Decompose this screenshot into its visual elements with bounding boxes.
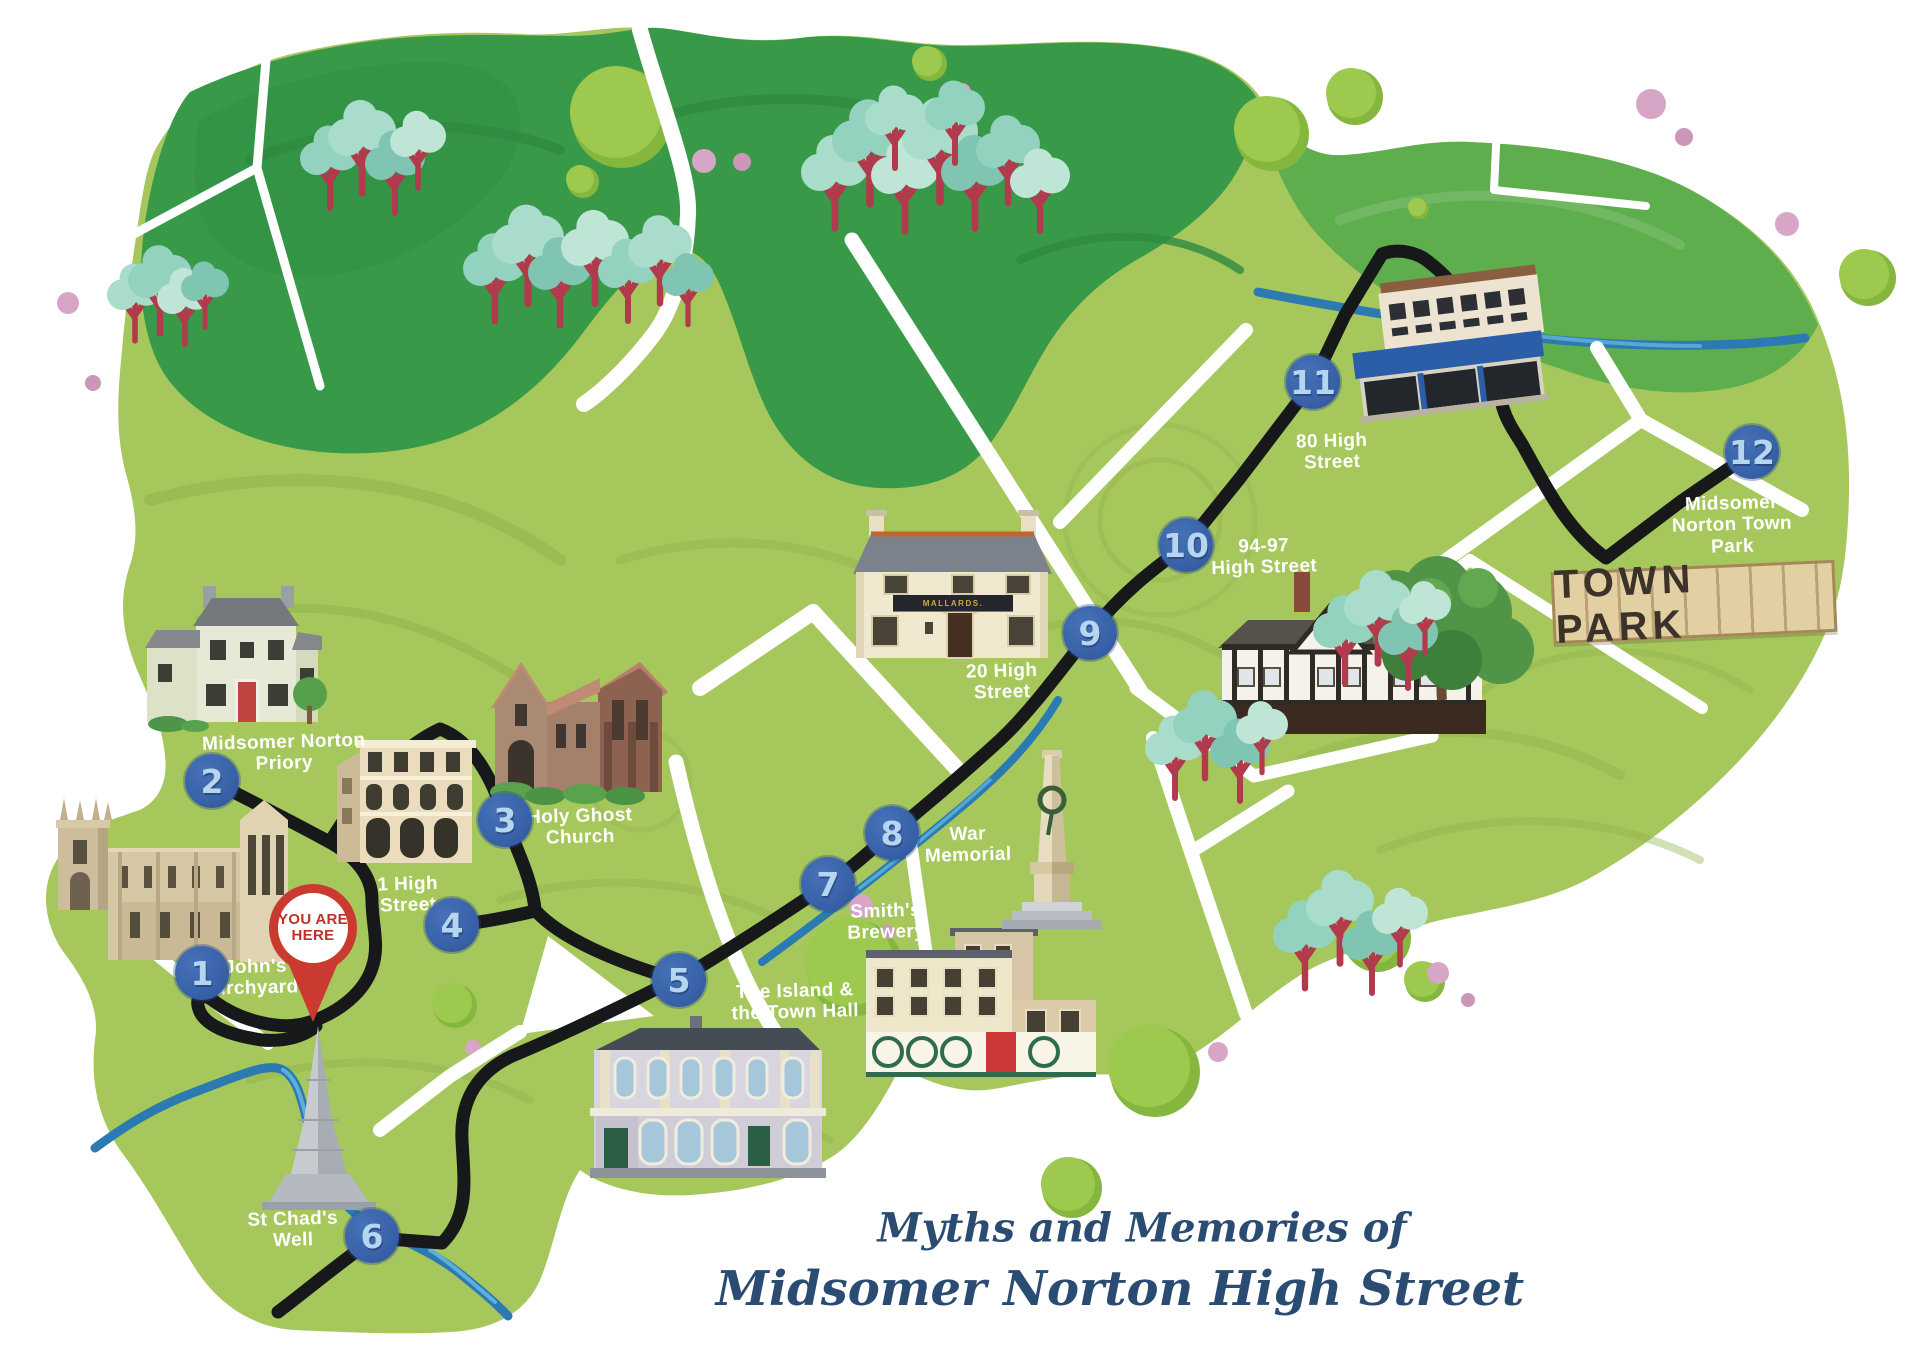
stop-marker-4: 4 — [425, 898, 479, 952]
stop-number: 12 — [1729, 433, 1775, 472]
town-park-sign: TOWN PARK — [1551, 560, 1838, 644]
town-hall-illustration — [590, 1016, 826, 1178]
stop-number: 3 — [494, 801, 517, 840]
mallards-sign-text: MALLARDS. — [923, 599, 984, 608]
stop-number: 11 — [1290, 363, 1336, 402]
stop-marker-1: 1 — [175, 946, 229, 1000]
stop-marker-5: 5 — [652, 953, 706, 1007]
map-title-line2: Midsomer Norton High Street — [716, 1261, 1524, 1317]
stop-marker-2: 2 — [185, 754, 239, 808]
mallards-sign: MALLARDS. — [893, 595, 1013, 612]
stop-number: 9 — [1079, 614, 1102, 653]
stop-number: 8 — [881, 814, 904, 853]
map-title-line1: Myths and Memories of — [877, 1205, 1406, 1252]
stop-marker-6: 6 — [345, 1209, 399, 1263]
town-park-sign-text: TOWN PARK — [1553, 551, 1835, 653]
stop-label-9: 20 High Street — [966, 660, 1039, 704]
stop-number: 4 — [441, 906, 464, 945]
stop-number: 7 — [817, 865, 840, 904]
stop-label-11: 80 High Street — [1296, 430, 1369, 474]
stop-marker-12: 12 — [1725, 425, 1779, 479]
stop-marker-10: 10 — [1159, 518, 1213, 572]
map-artwork — [0, 0, 1920, 1366]
stop-number: 10 — [1163, 526, 1209, 565]
stop-label-8: War Memorial — [924, 823, 1012, 868]
stop-label-10: 94-97 High Street — [1211, 534, 1318, 579]
stop-label-7: Smith's Brewery — [847, 900, 926, 945]
stop-label-6: St Chad's Well — [247, 1208, 339, 1253]
you-are-here-text: YOU ARE HERE — [278, 912, 348, 944]
stop-marker-8: 8 — [865, 806, 919, 860]
stop-label-5: The Island & the Town Hall — [731, 979, 859, 1025]
stop-number: 2 — [201, 762, 224, 801]
stop-number: 5 — [668, 961, 691, 1000]
stop-label-3: Holy Ghost Church — [527, 804, 633, 849]
illustrated-town-map: 1 2 3 4 5 6 7 8 9 10 11 12 St John's Chu… — [0, 0, 1920, 1366]
stop-marker-9: 9 — [1063, 606, 1117, 660]
stop-marker-7: 7 — [801, 857, 855, 911]
stop-label-12: Midsomer Norton Town Park — [1671, 492, 1793, 559]
stop-marker-3: 3 — [478, 793, 532, 847]
stop-number: 1 — [191, 954, 214, 993]
mallards-20-high-street-illustration — [853, 510, 1052, 658]
stop-number: 6 — [361, 1217, 384, 1256]
stop-marker-11: 11 — [1286, 355, 1340, 409]
pin-inner-circle: YOU ARE HERE — [278, 893, 348, 963]
